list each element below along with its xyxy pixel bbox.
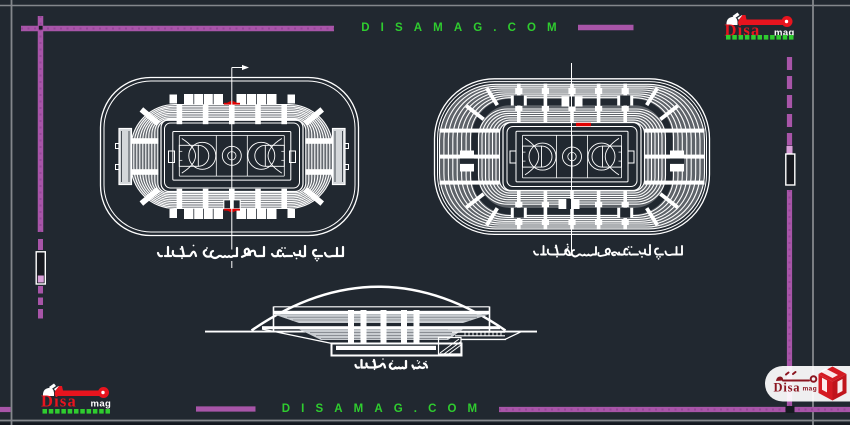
svg-text:mag: mag [803, 386, 818, 393]
svg-text:mag: mag [91, 399, 112, 410]
svg-text:DISAMAG.COM: DISAMAG.COM [282, 403, 488, 415]
svg-text:Disa: Disa [774, 381, 801, 395]
svg-text:Disa: Disa [41, 392, 77, 411]
svg-text:DISAMAG.COM: DISAMAG.COM [361, 22, 567, 34]
